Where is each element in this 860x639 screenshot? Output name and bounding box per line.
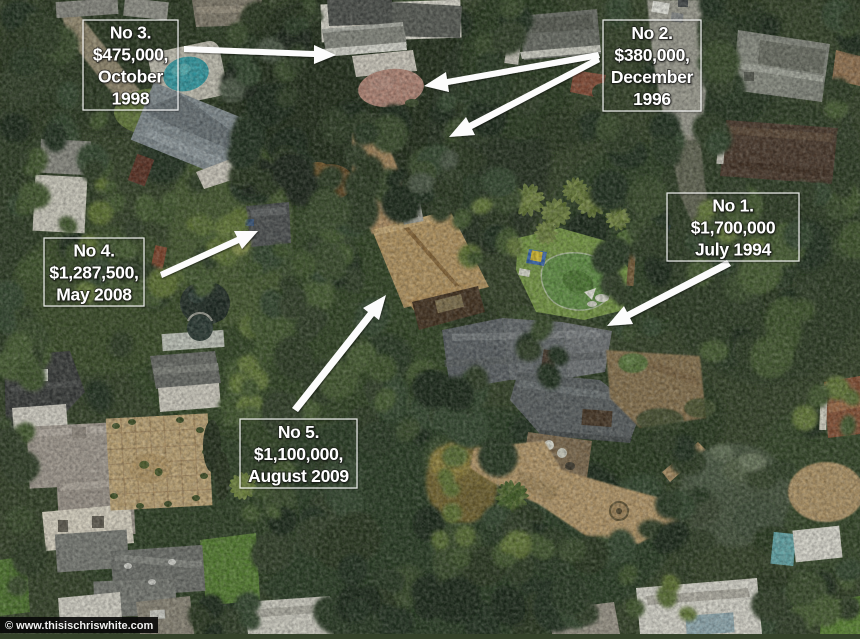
- svg-text:$1,287,500,: $1,287,500,: [49, 262, 138, 282]
- svg-text:July 1994: July 1994: [695, 239, 772, 259]
- svg-text:1996: 1996: [633, 89, 671, 109]
- svg-text:No 2.: No 2.: [631, 23, 672, 43]
- svg-text:May 2008: May 2008: [56, 284, 132, 304]
- svg-text:October: October: [98, 66, 163, 86]
- svg-text:$1,700,000: $1,700,000: [691, 217, 776, 237]
- svg-text:© www.thisischriswhite.com: © www.thisischriswhite.com: [5, 620, 154, 632]
- svg-text:$380,000,: $380,000,: [614, 45, 689, 65]
- svg-text:1998: 1998: [112, 88, 150, 108]
- svg-text:No 3.: No 3.: [110, 22, 151, 42]
- svg-text:$475,000,: $475,000,: [93, 44, 168, 64]
- svg-text:No 1.: No 1.: [712, 195, 753, 215]
- svg-text:December: December: [611, 67, 694, 87]
- svg-text:No 5.: No 5.: [278, 422, 319, 442]
- svg-text:No 4.: No 4.: [73, 240, 114, 260]
- svg-text:$1,100,000,: $1,100,000,: [254, 444, 343, 464]
- svg-text:August 2009: August 2009: [248, 466, 349, 486]
